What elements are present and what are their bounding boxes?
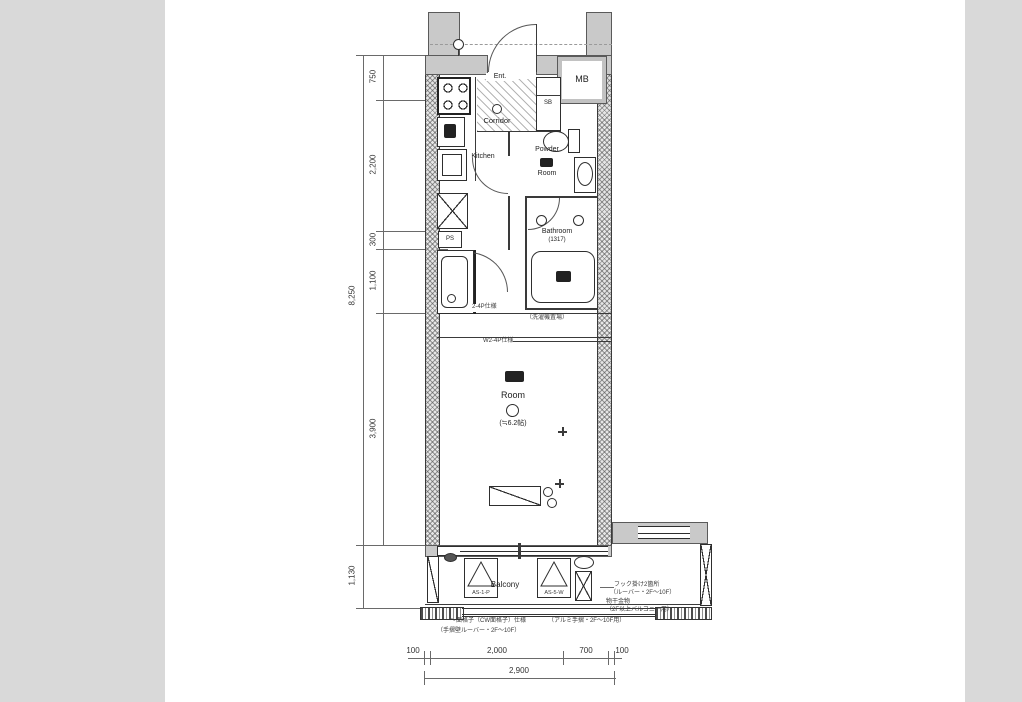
doorbell-icon bbox=[453, 39, 464, 50]
balcony-label: Balcony bbox=[480, 581, 530, 590]
washer-drain bbox=[447, 294, 456, 303]
wall-pilaster-right bbox=[586, 12, 612, 58]
balcony-code-1: AS-1-P bbox=[465, 590, 497, 597]
annotation-right-3: 物干金物 bbox=[606, 599, 630, 607]
partition-powder-left-b bbox=[508, 196, 510, 250]
room-light-icon bbox=[506, 404, 519, 417]
dim-label-total-2900: 2,900 bbox=[499, 666, 539, 676]
floorplan-screenshot: { "colors": { "canvas_bg": "#d9d9d9", "p… bbox=[0, 0, 1022, 702]
corridor-light-icon bbox=[492, 104, 502, 114]
toilet-tank bbox=[568, 129, 580, 153]
bathtub-drain bbox=[556, 271, 571, 282]
dim-label-total-8250: 8,250 bbox=[347, 273, 358, 319]
shower-fixture-icon bbox=[536, 215, 547, 226]
cross-mark-1 bbox=[562, 427, 564, 436]
dim-tick bbox=[563, 651, 564, 665]
kitchen-counter-inner bbox=[442, 154, 462, 176]
balcony-drain bbox=[574, 556, 594, 569]
annotation-bottom-2: （アルミ手摺・2F〜10F用） bbox=[548, 618, 625, 626]
dim-line-left-inner bbox=[383, 55, 384, 545]
bathroom-wall-left bbox=[525, 196, 527, 310]
annotation-right-4: （2F以上バルコニー用） bbox=[606, 607, 673, 615]
kitchen-label: Kitchen bbox=[466, 153, 500, 161]
meter-box: MB bbox=[558, 57, 606, 103]
annotation-leader bbox=[600, 587, 614, 588]
bathroom-label: Bathroom bbox=[532, 228, 582, 236]
doorbell-stem bbox=[458, 50, 459, 56]
annotation-right-1: フック掛け2箇所 bbox=[614, 582, 659, 590]
balcony-partition-left bbox=[427, 556, 439, 603]
side-window bbox=[638, 526, 690, 539]
powder-room-mirror bbox=[540, 158, 553, 167]
annotation-mid-3: W2-4P仕様 bbox=[483, 338, 513, 346]
dim-label-2200: 2,200 bbox=[368, 142, 379, 188]
bathroom-wall-bottom bbox=[525, 308, 597, 310]
dim-tick bbox=[430, 651, 431, 665]
balcony-light-icon bbox=[444, 553, 457, 562]
entrance-label: Ent. bbox=[486, 73, 514, 81]
room-top-line bbox=[437, 337, 612, 338]
corridor-label: Corridor bbox=[472, 117, 522, 125]
pipe-space-label: PS bbox=[438, 236, 462, 243]
annotation-bottom-1: 〜面格子（CW面格子）仕様 bbox=[450, 618, 526, 626]
dim-line-bottom-1 bbox=[408, 658, 622, 659]
dim-label-3900: 3,900 bbox=[368, 406, 379, 452]
annotation-mid-2: （洗濯機置場） bbox=[526, 315, 568, 323]
balcony-partition-right bbox=[700, 544, 712, 606]
room-size-label: (≒6.2帖) bbox=[483, 420, 543, 428]
room-ac-unit bbox=[505, 371, 524, 382]
annotation-right-2: （ルーバー・2F〜10F） bbox=[610, 590, 675, 598]
window-center-mullion bbox=[518, 543, 521, 559]
dim-label-1100: 1,100 bbox=[368, 258, 379, 304]
dim-label-700: 700 bbox=[571, 646, 601, 656]
dim-line-bottom-2 bbox=[424, 678, 616, 679]
dim-label-2000: 2,000 bbox=[477, 646, 517, 656]
dim-label-300: 300 bbox=[368, 217, 379, 263]
dim-label-100-right: 100 bbox=[610, 646, 634, 656]
wall-top-left bbox=[425, 55, 488, 75]
partition-powder-left-a bbox=[508, 131, 510, 156]
room-sliding-window bbox=[460, 546, 608, 556]
powder-room-label-1: Powder bbox=[525, 146, 569, 154]
vanity-basin bbox=[577, 162, 593, 186]
furniture-circle-1 bbox=[543, 487, 553, 497]
bathroom-wall-top bbox=[525, 196, 597, 198]
furniture-circle-2 bbox=[547, 498, 557, 508]
shoe-box-label: SB bbox=[538, 100, 558, 107]
ac-outdoor-unit-1: AS-1-P bbox=[464, 558, 498, 598]
entrance-door-leaf bbox=[536, 24, 537, 72]
dim-label-balcony-1130: 1,130 bbox=[347, 553, 358, 599]
bathroom-size-label: (1317) bbox=[532, 237, 582, 244]
balcony-floor-line bbox=[425, 604, 712, 605]
dim-tick bbox=[356, 608, 430, 609]
shoe-box-shelf bbox=[537, 95, 560, 96]
refrigerator-space bbox=[437, 193, 468, 229]
kitchen-sink-basin bbox=[444, 124, 456, 138]
dim-tick bbox=[608, 651, 609, 665]
kitchen-stove bbox=[437, 77, 471, 115]
annotation-mid-1: 2-4P仕様 bbox=[472, 304, 497, 312]
wall-pilaster-left bbox=[428, 12, 460, 58]
ac-outdoor-unit-2: AS-5-W bbox=[537, 558, 571, 598]
evacuation-hatch bbox=[575, 571, 592, 601]
wall-right bbox=[597, 75, 612, 545]
triangle-symbol bbox=[538, 560, 570, 588]
annotation-bottom-3: （手摺壁ルーバー・2F〜10F） bbox=[437, 628, 520, 636]
dim-label-750: 750 bbox=[368, 54, 379, 100]
powder-room-label-2: Room bbox=[525, 170, 569, 178]
dim-line-left-outer bbox=[363, 55, 364, 608]
dim-label-100-left: 100 bbox=[401, 646, 425, 656]
room-label: Room bbox=[488, 391, 538, 401]
meter-box-label: MB bbox=[575, 75, 589, 85]
dim-tick bbox=[424, 671, 425, 685]
faucet-fixture-icon bbox=[573, 215, 584, 226]
balcony-code-2: AS-5-W bbox=[538, 590, 570, 597]
bed-symbol bbox=[489, 486, 541, 506]
cross-mark-2 bbox=[559, 479, 561, 488]
dim-tick bbox=[614, 671, 615, 685]
